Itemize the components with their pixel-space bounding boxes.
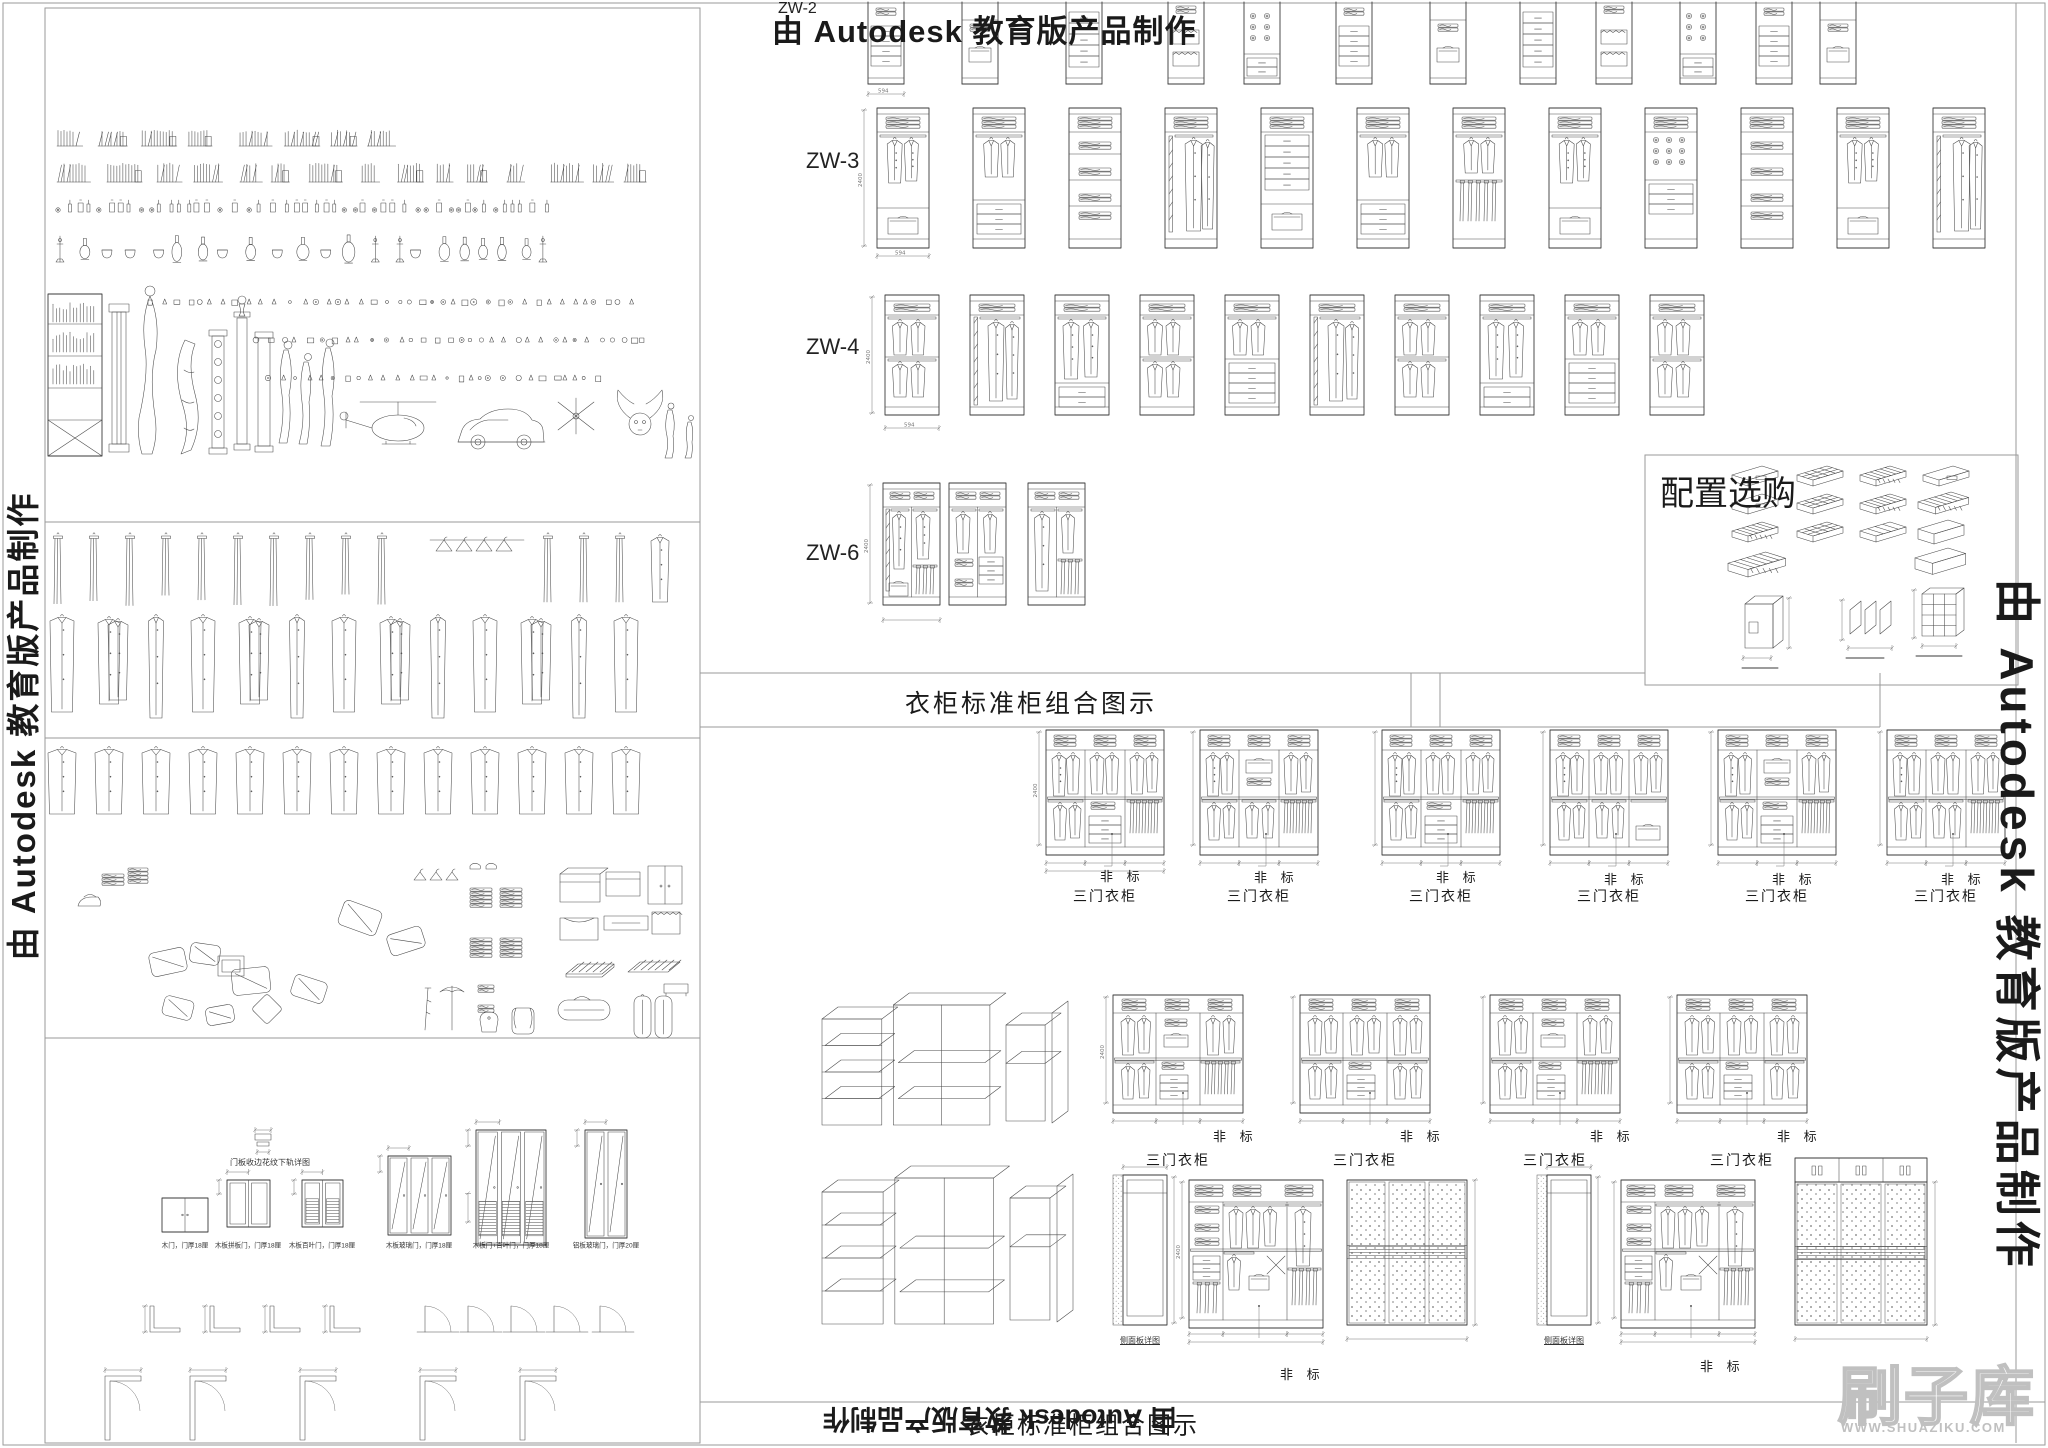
row-label-zw6: ZW-6 [806, 540, 859, 566]
nonstandard-callout-9: 非 标 [1777, 1126, 1822, 1145]
nonstandard-callout-6: 非 标 [1213, 1126, 1258, 1145]
door-type-label-0: 木门，门厚18厘 [162, 1241, 209, 1250]
door-type-label-2: 木板百叶门，门厚18厘 [289, 1241, 355, 1250]
nonstandard-callout-0: 非 标 [1100, 866, 1145, 885]
wardrobe-name-label-7: 三门衣柜 [1333, 1150, 1397, 1170]
svg-text:594: 594 [878, 89, 889, 95]
nonstandard-callout-2: 非 标 [1436, 867, 1481, 886]
door-track-detail-label: 门板收边花纹下轨详图 [230, 1157, 310, 1168]
cad-sheet: 594240059424005942400240024002400 由 Auto… [0, 0, 2048, 1448]
svg-text:2400: 2400 [858, 173, 864, 187]
side-panel-detail-label-0: 侧面板详图 [1120, 1335, 1160, 1346]
wardrobe-name-label-5: 三门衣柜 [1914, 886, 1978, 906]
door-type-label-4: 木板门+百叶门，门厚18厘 [473, 1241, 550, 1250]
nonstandard-callout-8: 非 标 [1590, 1126, 1635, 1145]
row-label-zw4: ZW-4 [806, 334, 859, 360]
row-label-zw3: ZW-3 [806, 148, 859, 174]
wardrobe-name-label-8: 三门衣柜 [1523, 1150, 1587, 1170]
wardrobe-name-label-1: 三门衣柜 [1227, 886, 1291, 906]
svg-text:594: 594 [904, 423, 915, 429]
wardrobe-name-label-9: 三门衣柜 [1710, 1150, 1774, 1170]
wardrobe-name-label-2: 三门衣柜 [1409, 886, 1473, 906]
svg-text:2400: 2400 [1176, 1245, 1182, 1259]
door-type-label-3: 木板玻璃门，门厚18厘 [386, 1241, 452, 1250]
nonstandard-callout-7: 非 标 [1400, 1126, 1445, 1145]
svg-text:2400: 2400 [1100, 1045, 1106, 1059]
nonstandard-callout-1: 非 标 [1254, 867, 1299, 886]
section-title: 衣柜标准柜组合图示 [905, 684, 1157, 720]
section-title-bottom: 衣柜标准柜组合图示 [965, 1406, 1199, 1441]
wardrobe-name-label-4: 三门衣柜 [1745, 886, 1809, 906]
wardrobe-name-label-3: 三门衣柜 [1577, 886, 1641, 906]
side-panel-detail-label-1: 侧面板详图 [1544, 1335, 1584, 1346]
svg-text:594: 594 [895, 251, 906, 257]
door-type-label-5: 铝板玻璃门，门厚20厘 [573, 1241, 639, 1250]
svg-text:2400: 2400 [1033, 783, 1039, 797]
row-label-zw2: ZW-2 [778, 0, 817, 18]
nonstandard-callout-10: 非 标 [1280, 1364, 1325, 1383]
cad-drawing: 594240059424005942400240024002400 [0, 0, 2048, 1448]
svg-text:2400: 2400 [864, 539, 870, 553]
wardrobe-name-label-6: 三门衣柜 [1146, 1150, 1210, 1170]
door-type-label-1: 木板拼板门，门厚18厘 [215, 1241, 281, 1250]
watermark-url: WWW.SHUAZIKU.COM [1841, 1420, 2006, 1435]
nonstandard-callout-11: 非 标 [1700, 1356, 1745, 1375]
autodesk-banner-left: 由 Autodesk 教育版产品制作 [0, 492, 45, 961]
svg-text:2400: 2400 [866, 350, 872, 364]
wardrobe-name-label-0: 三门衣柜 [1073, 886, 1137, 906]
config-box-title: 配置选购 [1660, 470, 1700, 519]
autodesk-banner-top: 由 Autodesk 教育版产品制作 [772, 6, 1196, 51]
autodesk-banner-right: 由 Autodesk 教育版产品制作 [1987, 578, 2048, 1271]
